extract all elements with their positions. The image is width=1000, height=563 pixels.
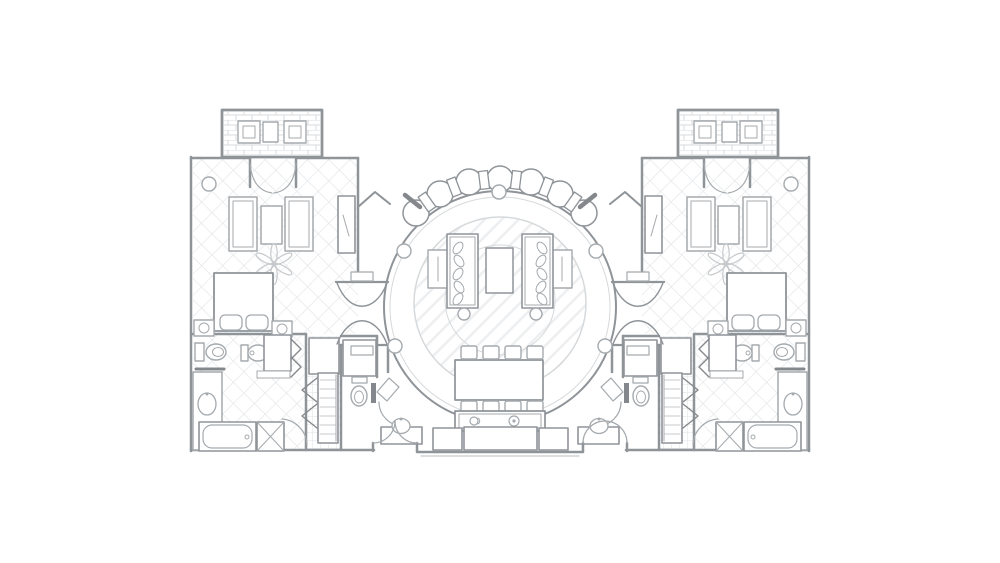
entry-cabinet xyxy=(539,428,568,450)
powder-tap xyxy=(400,418,403,421)
wall-bar xyxy=(371,383,376,403)
bed-pillow xyxy=(732,315,754,330)
powder-tap xyxy=(598,418,601,421)
portal-threshold xyxy=(627,346,649,355)
vestibule-chevron-wall xyxy=(358,192,390,207)
nightstand xyxy=(786,320,806,336)
crown-pier xyxy=(478,171,489,190)
corridor-cabinet xyxy=(661,338,691,374)
bed-pillow xyxy=(220,315,242,330)
wardrobe xyxy=(662,373,682,443)
dining-chair xyxy=(527,346,543,359)
dining-chair xyxy=(461,346,477,359)
balcony-chair xyxy=(284,121,306,143)
bed-pillow xyxy=(758,315,780,330)
dresser xyxy=(338,196,355,253)
balcony-table xyxy=(722,122,737,142)
burner-center xyxy=(512,419,515,422)
floor-lamp xyxy=(202,177,216,191)
coffee-cup xyxy=(470,417,478,425)
floor-lamp xyxy=(784,177,798,191)
shelf xyxy=(257,371,290,378)
bed-pillow xyxy=(246,315,268,330)
lounge-table xyxy=(261,206,282,244)
wc-toilet-tank xyxy=(352,377,367,383)
entry-cabinet xyxy=(433,428,462,450)
bidet-back xyxy=(752,345,759,361)
column xyxy=(598,339,612,353)
corner-shelf xyxy=(601,378,623,401)
vanity-tap xyxy=(792,393,795,396)
portal-threshold xyxy=(627,272,649,281)
toilet-tank xyxy=(796,343,805,361)
vanity-tap xyxy=(206,393,209,396)
dining-chair xyxy=(505,346,521,359)
column xyxy=(589,244,603,258)
vanity-sink xyxy=(784,393,802,415)
nightstand xyxy=(194,320,214,336)
balcony-chair xyxy=(238,121,260,143)
toilet-tank xyxy=(195,343,204,361)
wardrobe xyxy=(318,373,338,443)
balcony-chair xyxy=(740,121,762,143)
hotel-suite-floor-plan xyxy=(0,0,1000,563)
lounge-table xyxy=(718,206,739,244)
corner-shelf xyxy=(377,378,399,401)
balcony-chair xyxy=(694,121,716,143)
pendant-column xyxy=(492,185,506,199)
closet xyxy=(709,335,736,371)
portal-threshold xyxy=(351,346,373,355)
vanity-sink xyxy=(198,393,216,415)
wall-bar xyxy=(624,383,629,403)
bidet-back xyxy=(241,345,248,361)
coffee-table xyxy=(486,248,513,293)
entry-cabinet xyxy=(464,427,537,450)
corridor-cabinet xyxy=(309,338,339,374)
closet xyxy=(264,335,291,371)
shelf xyxy=(710,371,743,378)
vestibule-chevron-wall xyxy=(610,192,642,207)
dining-chair xyxy=(483,346,499,359)
wc-toilet-tank xyxy=(633,377,648,383)
floor-lamp xyxy=(530,308,542,320)
floor-plan-stage xyxy=(0,0,1000,563)
floor-lamp xyxy=(458,308,470,320)
balcony-table xyxy=(263,122,278,142)
dining-table xyxy=(455,360,543,400)
crown-pier xyxy=(510,171,521,190)
column xyxy=(397,244,411,258)
portal-threshold xyxy=(351,272,373,281)
dresser xyxy=(645,196,662,253)
column xyxy=(388,339,402,353)
